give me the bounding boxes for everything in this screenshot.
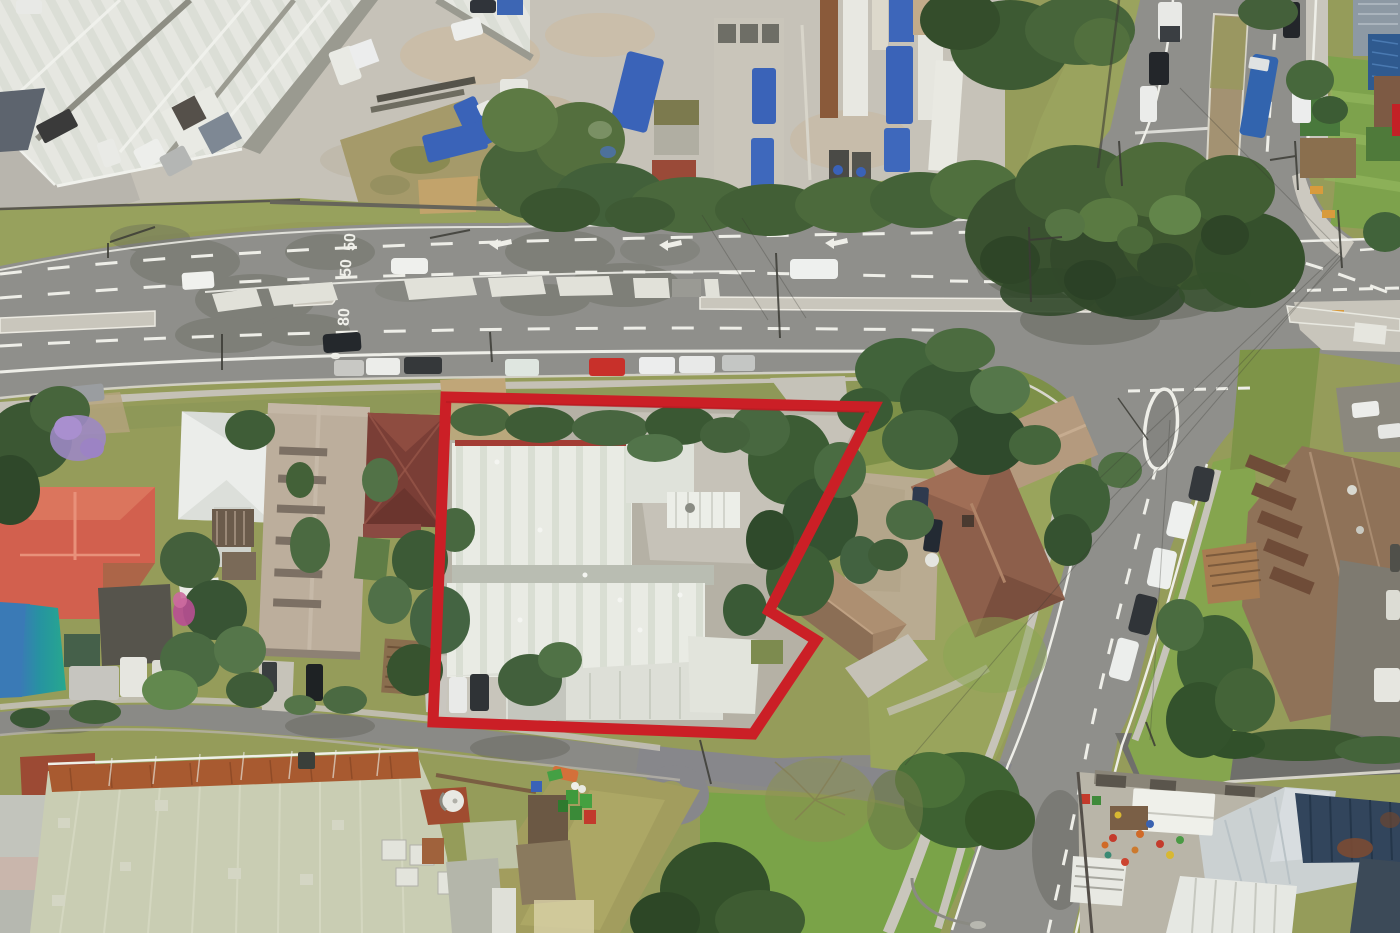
svg-text:0: 0	[328, 352, 343, 360]
svg-text:50: 50	[342, 233, 360, 251]
svg-text:80: 80	[336, 308, 354, 326]
svg-text:50: 50	[338, 259, 356, 277]
